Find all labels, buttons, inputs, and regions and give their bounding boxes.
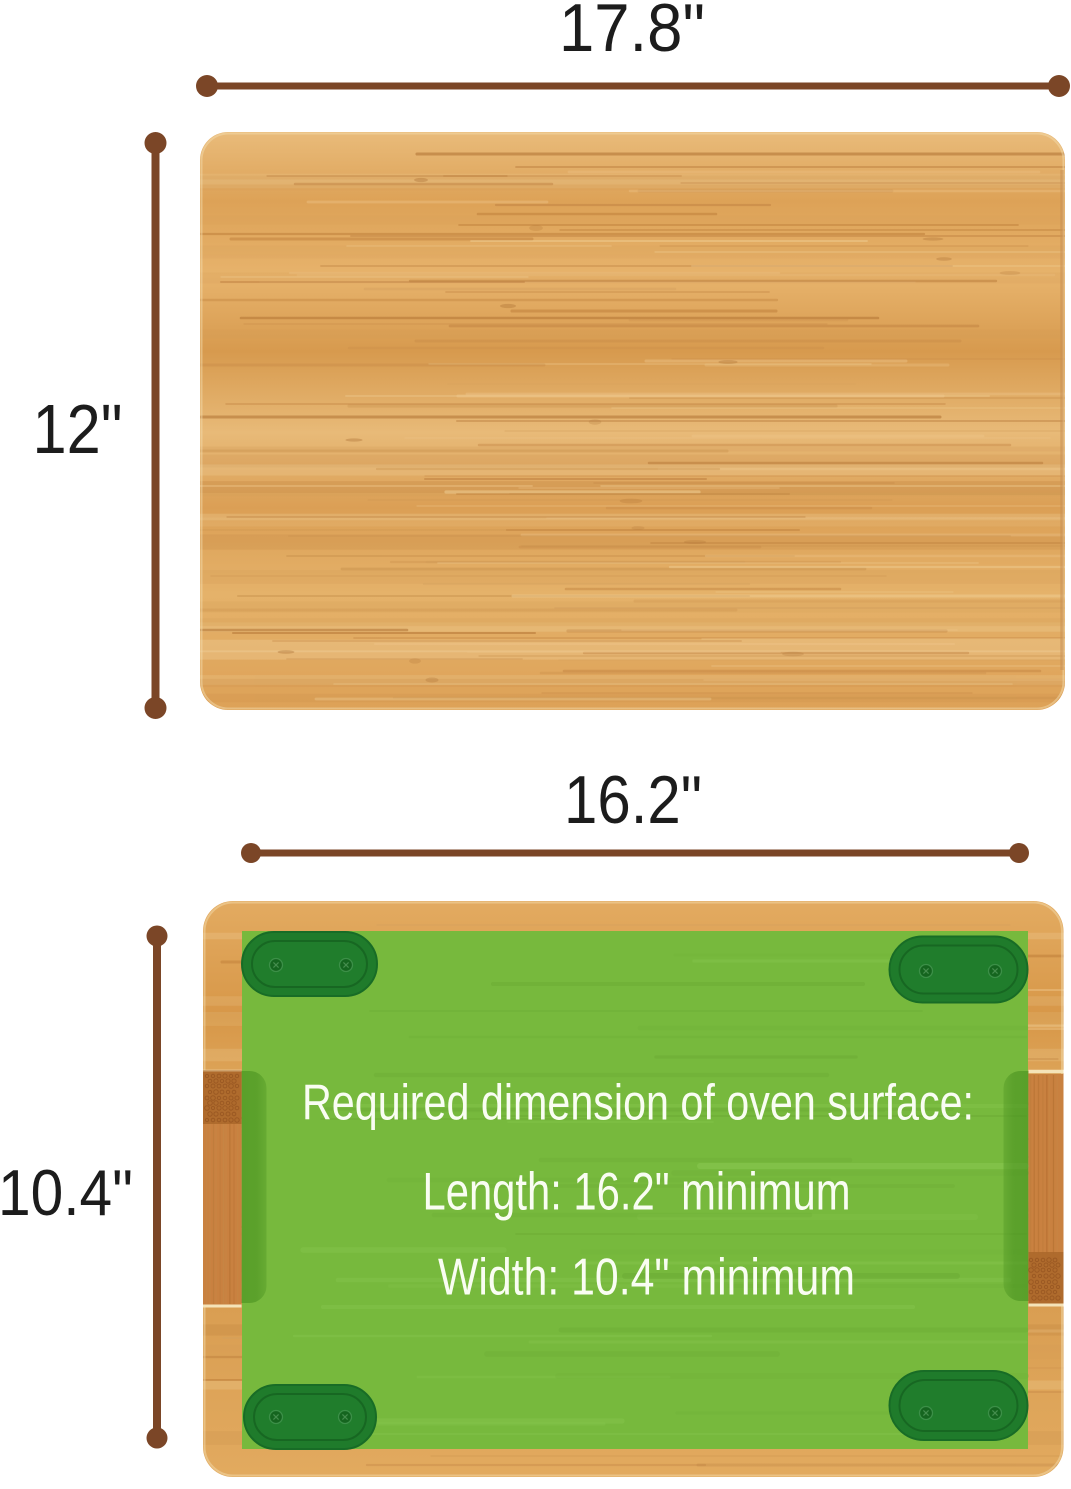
svg-text:Length: 16.2" minimum: Length: 16.2" minimum [423,1163,851,1222]
svg-text:Width: 10.4" minimum: Width: 10.4" minimum [438,1249,855,1307]
svg-text:Required dimension of oven sur: Required dimension of oven surface: [302,1075,974,1131]
svg-text:12": 12" [33,390,123,468]
svg-text:16.2": 16.2" [564,762,702,838]
svg-text:17.8": 17.8" [559,0,705,66]
svg-text:10.4": 10.4" [0,1156,133,1229]
